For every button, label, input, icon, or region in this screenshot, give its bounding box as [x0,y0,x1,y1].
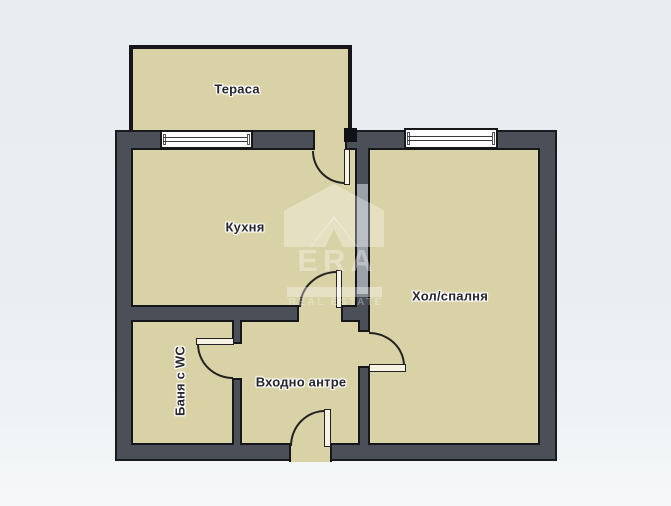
terrace-door-opening [313,130,347,150]
living-bedroom-label: Хол/спалня [412,289,488,304]
window-frame-cap [247,134,250,145]
window-glass [163,137,250,142]
living-room-window [404,128,498,149]
entrance-hall-label: Входно антре [256,375,347,390]
bathroom-door-leaf [196,338,234,345]
kitchen-label: Кухня [226,220,265,235]
entrance-door-leaf [324,409,331,447]
kitchen-door-leaf [336,270,342,308]
bathroom-label: Баня с WC [173,346,188,416]
bathroom-door-opening [232,342,242,380]
kitchen-window [160,130,253,149]
floor-plan: Тераса Кухня Хол/спалня Входно антре Бан… [0,0,671,506]
window-glass [407,136,495,141]
terrace-door-leaf [344,149,350,185]
partition-wall-light [357,184,368,294]
wall-junction-post [344,128,357,142]
terrace-label: Тераса [214,82,260,97]
window-frame-cap [492,132,495,145]
living-room-door-leaf [369,364,406,372]
